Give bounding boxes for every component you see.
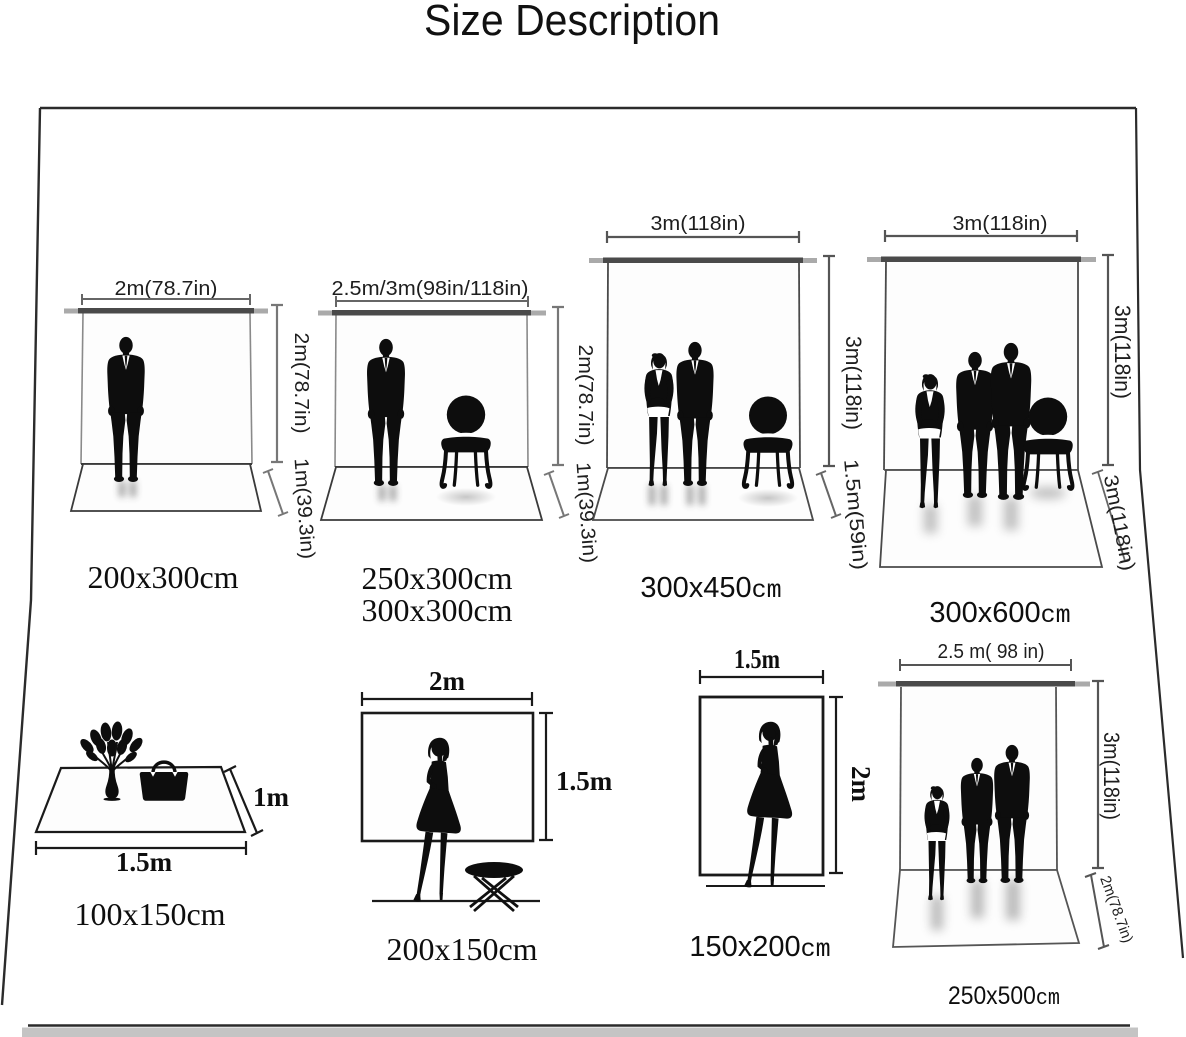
svg-text:200x150cm: 200x150cm	[386, 931, 537, 967]
svg-text:150x200cm: 150x200cm	[689, 931, 830, 964]
svg-text:Size Description: Size Description	[424, 0, 720, 45]
svg-text:1.5m: 1.5m	[556, 766, 613, 796]
svg-text:100x150cm: 100x150cm	[74, 896, 225, 932]
svg-text:1.5m: 1.5m	[734, 644, 780, 674]
svg-text:3m(118in): 3m(118in)	[953, 213, 1048, 235]
svg-text:1.5m: 1.5m	[116, 847, 173, 877]
svg-text:300x300cm: 300x300cm	[361, 592, 512, 628]
svg-text:2m(78.7in): 2m(78.7in)	[290, 333, 312, 434]
svg-text:2.5 m( 98 in): 2.5 m( 98 in)	[938, 641, 1045, 663]
svg-text:300x450cm: 300x450cm	[640, 572, 781, 605]
svg-text:3m(118in): 3m(118in)	[651, 213, 746, 235]
svg-text:3m(118in): 3m(118in)	[841, 336, 866, 430]
svg-text:2m(78.7in): 2m(78.7in)	[115, 278, 218, 300]
svg-text:3m(118in): 3m(118in)	[1110, 305, 1135, 399]
svg-text:2.5m/3m(98in/118in): 2.5m/3m(98in/118in)	[332, 278, 529, 300]
svg-text:3m(118in): 3m(118in)	[1099, 732, 1124, 820]
svg-text:250x500cm: 250x500cm	[948, 982, 1060, 1011]
svg-text:200x300cm: 200x300cm	[87, 559, 238, 595]
svg-text:250x300cm: 250x300cm	[361, 560, 512, 596]
svg-text:300x600cm: 300x600cm	[929, 597, 1070, 630]
svg-text:2m: 2m	[846, 766, 876, 803]
svg-text:2m(78.7in): 2m(78.7in)	[574, 345, 596, 446]
svg-text:1m: 1m	[253, 782, 290, 812]
svg-text:2m: 2m	[429, 666, 466, 696]
